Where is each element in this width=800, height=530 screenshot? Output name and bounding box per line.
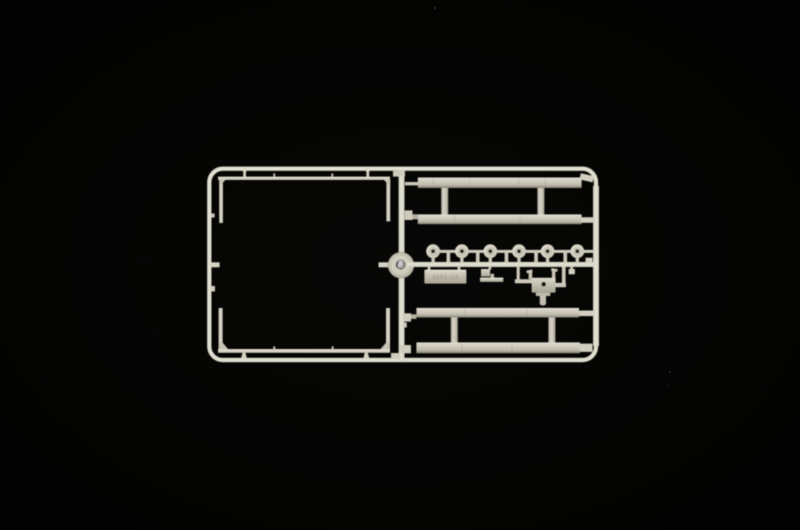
svg-text:3851-C5: 3851-C5 — [432, 274, 459, 281]
